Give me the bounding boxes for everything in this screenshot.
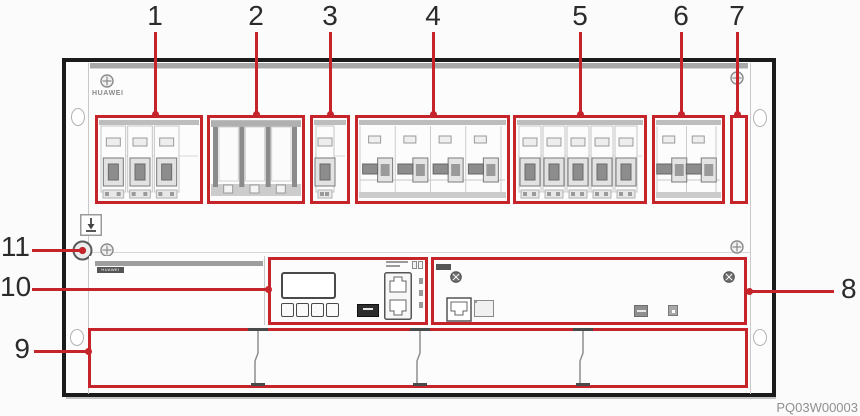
panel-divider [252,331,262,385]
callout-dot-3 [327,111,334,118]
callout-line-5 [579,32,582,116]
callout-dot-11 [79,247,86,254]
chassis-shadow [66,397,776,399]
panel-latch-tab [573,328,593,331]
callout-dot-8 [746,288,753,295]
breaker-group-box-7 [730,115,748,204]
callout-line-11 [32,249,82,252]
chassis-screw-icon [100,74,114,88]
control-button [281,303,294,317]
indicator-mark [419,278,423,284]
figure-canvas: HUAWEI HUAWEI [0,0,860,416]
subrack-top-bar [90,63,748,69]
callout-label-8: 8 [841,275,857,303]
mounting-hole [753,109,767,127]
control-button [326,303,339,317]
terminal-block [474,300,494,317]
mounting-hole [70,329,84,346]
control-button [296,303,309,317]
callout-dot-9 [85,348,92,355]
breaker-group-box-6 [652,115,725,204]
panel-divider [414,331,424,385]
watermark: PQ03W00003 [660,400,858,415]
callout-line-1 [154,32,157,116]
wide-connector [634,305,648,317]
callout-label-5: 5 [572,2,588,30]
callout-label-1: 1 [147,2,163,30]
chassis-screw-icon [100,243,114,257]
board-screw-icon [450,271,462,283]
mounting-hole [753,329,767,346]
panel-latch-tab [413,383,427,386]
callout-dot-5 [577,111,584,118]
panel-right-edge [750,63,751,394]
mounting-hole [71,108,85,126]
control-button [311,303,324,317]
breaker-group-box-1 [95,115,203,204]
callout-line-10 [32,288,268,291]
callout-label-3: 3 [322,2,338,30]
callout-label-4: 4 [425,2,441,30]
chassis-screw-icon [730,240,744,254]
subrack-divider [88,252,750,253]
indicator-mark [412,261,417,269]
board-screw-icon [723,271,735,283]
panel-divider [577,331,587,385]
port-label-mark [386,265,400,267]
panel-latch-tab [576,383,590,386]
callout-line-3 [329,32,332,116]
callout-dot-1 [152,111,159,118]
module-logo-chip: HUAWEI [97,267,124,273]
callout-dot-4 [430,111,437,118]
callout-label-2: 2 [248,2,264,30]
callout-dot-10 [265,286,272,293]
panel-latch-tab [248,328,268,331]
breaker-group-box-2 [207,115,305,204]
callout-label-10: 10 [0,273,30,301]
callout-line-7 [736,32,739,116]
small-connector [668,305,678,316]
huawei-logo: HUAWEI [92,90,124,97]
callout-label-11: 11 [0,233,30,261]
ethernet-ports-icon [384,272,412,320]
indicator-mark [419,302,423,308]
callout-line-9 [34,350,88,353]
callout-line-8 [748,290,834,293]
breaker-group-box-3 [310,115,350,204]
callout-label-7: 7 [729,2,745,30]
panel-latch-tab [410,328,430,331]
ground-symbol-icon [80,214,102,236]
callout-line-4 [432,32,435,116]
port-label-mark [386,261,408,263]
module-top-bar [95,261,263,266]
callout-line-2 [255,32,258,116]
callout-label-6: 6 [673,2,689,30]
callout-dot-6 [678,111,685,118]
usb-port [357,304,379,317]
callout-line-6 [680,32,683,116]
rj45-port-icon [446,297,472,322]
indicator-mark [418,261,423,269]
lcd-display [281,272,336,299]
callout-dot-7 [734,111,741,118]
breaker-group-box-4 [355,115,510,204]
board-label-chip [436,264,451,270]
panel-latch-tab [251,383,265,386]
callout-dot-2 [253,111,260,118]
indicator-mark [419,290,423,296]
breaker-group-box-5 [513,115,647,204]
callout-label-9: 9 [0,335,30,363]
